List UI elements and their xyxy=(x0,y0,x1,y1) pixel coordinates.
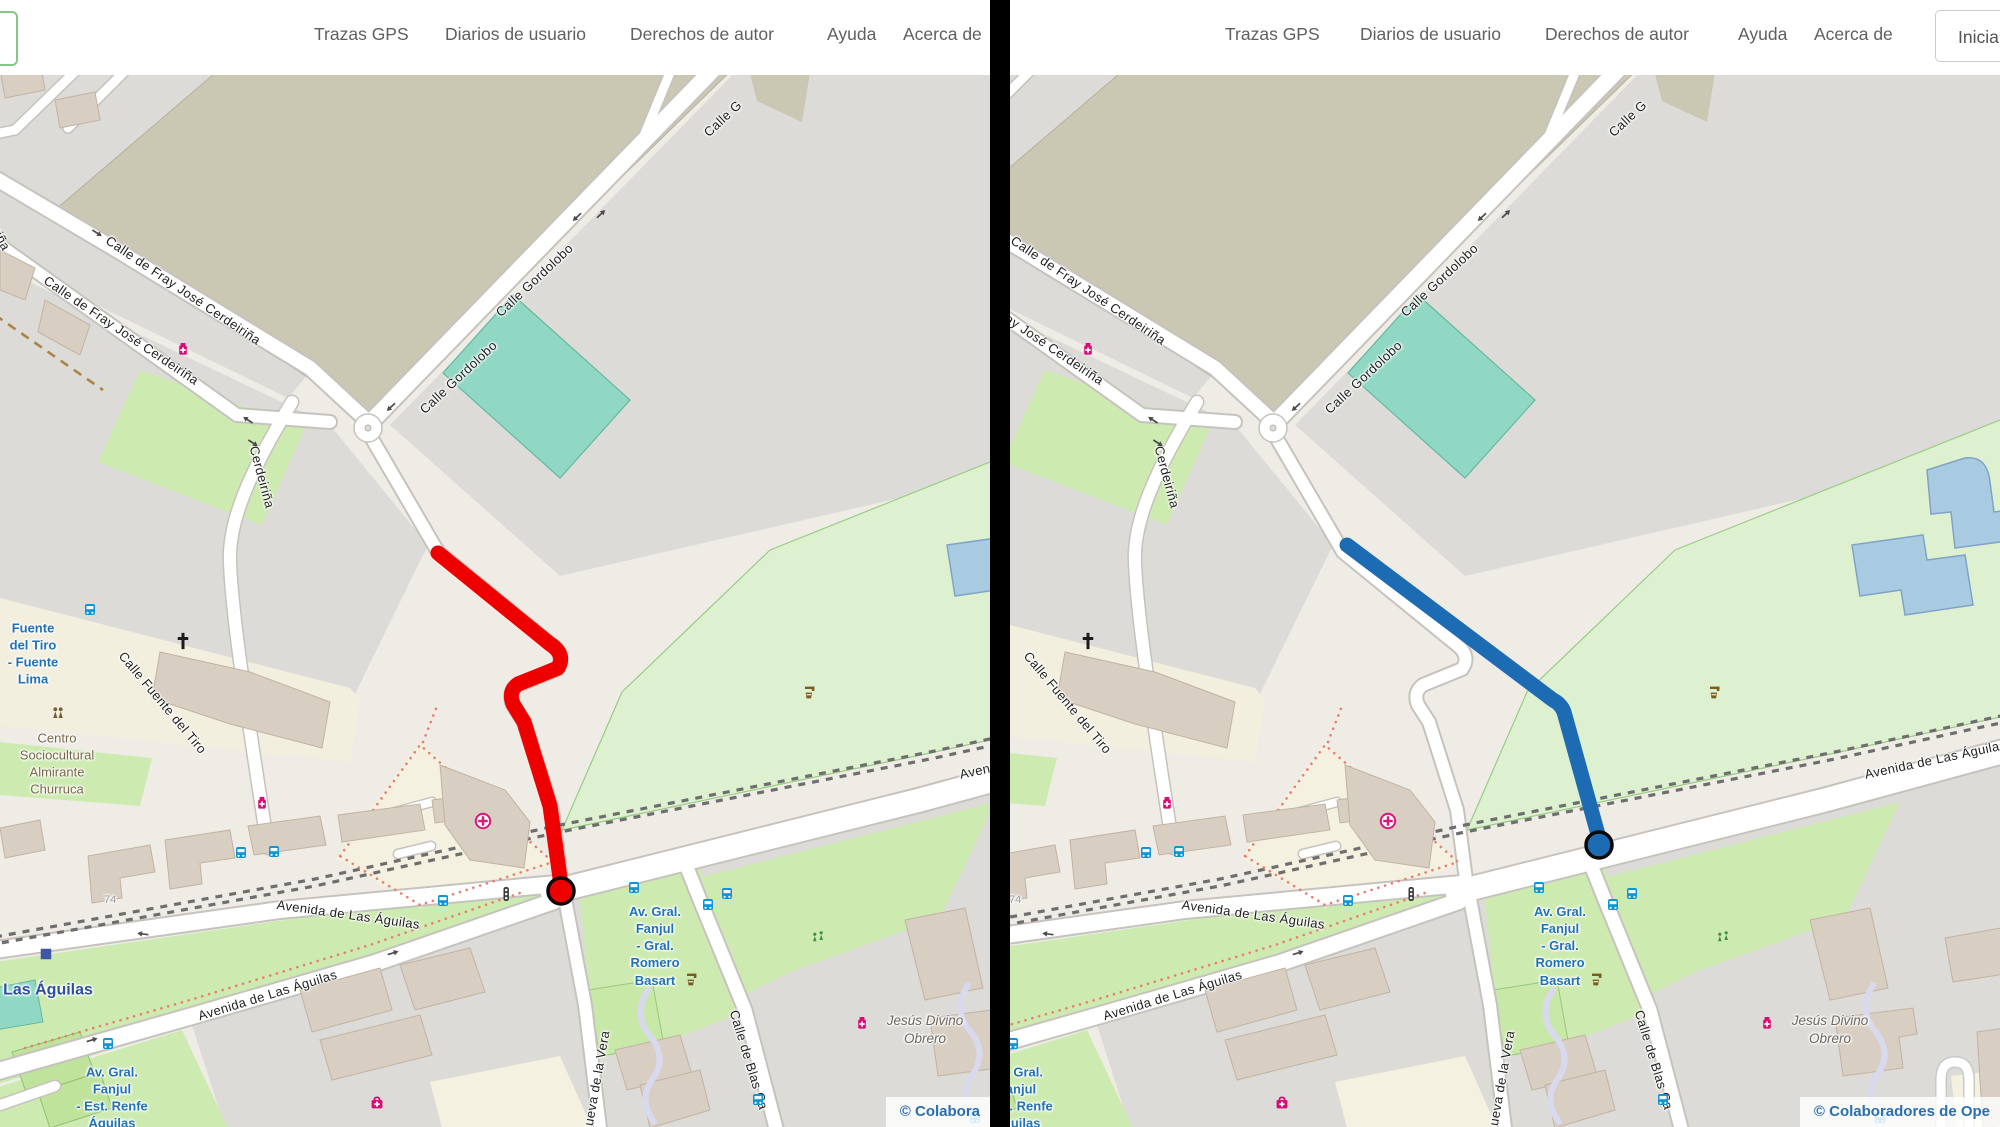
map-panel-right[interactable]: Calle de Fray José CerdeiriñaCalle de Fr… xyxy=(1010,0,2000,1127)
nav-item-ayuda[interactable]: Ayuda xyxy=(827,24,876,45)
map-panel-left[interactable]: Calle de Fray José CerdeiriñaCalle de Fr… xyxy=(0,0,990,1127)
nav-item-diarios-de-usuario[interactable]: Diarios de usuario xyxy=(445,24,586,45)
route-endpoint-blue xyxy=(1586,832,1612,858)
route-endpoint-red xyxy=(548,878,574,904)
screenshot-root: Calle de Fray José CerdeiriñaCalle de Fr… xyxy=(0,0,2000,1127)
nav-item-trazas-gps[interactable]: Trazas GPS xyxy=(1225,24,1320,45)
navbar-right: Trazas GPSDiarios de usuarioDerechos de … xyxy=(1010,0,2000,75)
map-canvas-left[interactable] xyxy=(0,0,990,1127)
nav-item-derechos-de-autor[interactable]: Derechos de autor xyxy=(1545,24,1689,45)
nav-item-acerca-de[interactable]: Acerca de xyxy=(903,24,982,45)
attribution-right[interactable]: © Colaboradores de Ope xyxy=(1800,1097,2000,1127)
map-canvas-right[interactable] xyxy=(1010,0,2000,1127)
navbar-left: Trazas GPSDiarios de usuarioDerechos de … xyxy=(0,0,990,75)
nav-item-derechos-de-autor[interactable]: Derechos de autor xyxy=(630,24,774,45)
login-button[interactable]: Iniciar xyxy=(1935,10,2000,62)
nav-item-trazas-gps[interactable]: Trazas GPS xyxy=(314,24,409,45)
nav-item-acerca-de[interactable]: Acerca de xyxy=(1814,24,1893,45)
panel-divider xyxy=(990,0,1010,1127)
attribution-left[interactable]: © Colabora xyxy=(886,1097,990,1127)
nav-item-ayuda[interactable]: Ayuda xyxy=(1738,24,1787,45)
partial-button[interactable] xyxy=(0,11,18,66)
nav-item-diarios-de-usuario[interactable]: Diarios de usuario xyxy=(1360,24,1501,45)
